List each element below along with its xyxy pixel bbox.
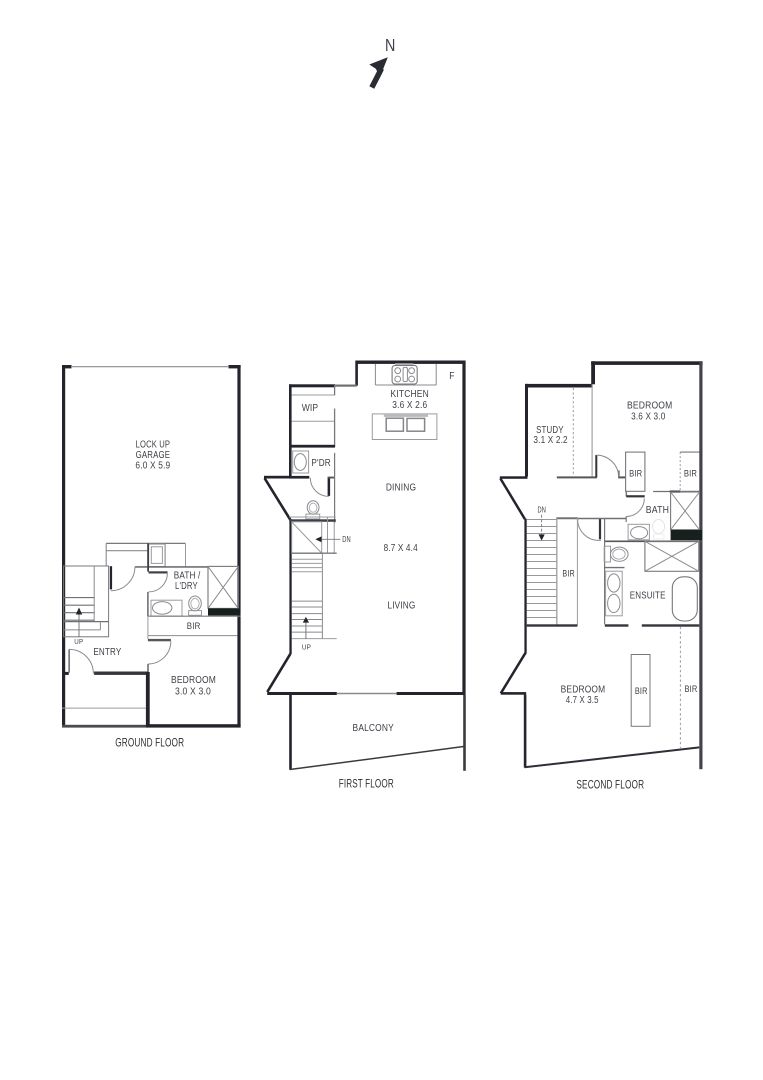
svg-text:BALCONY: BALCONY (353, 723, 394, 734)
svg-text:3.0 X 3.0: 3.0 X 3.0 (175, 686, 211, 697)
svg-text:BEDROOM: BEDROOM (171, 675, 216, 686)
svg-text:SECOND FLOOR: SECOND FLOOR (576, 778, 644, 792)
svg-text:GARAGE: GARAGE (136, 450, 171, 461)
svg-text:3.6 X 2.6: 3.6 X 2.6 (392, 400, 427, 411)
svg-text:BIR: BIR (562, 569, 574, 580)
svg-text:3.1 X 2.2: 3.1 X 2.2 (533, 435, 568, 446)
svg-text:LIVING: LIVING (387, 601, 415, 612)
svg-text:KITCHEN: KITCHEN (391, 389, 429, 400)
svg-text:DN: DN (538, 505, 547, 514)
svg-text:WIP: WIP (302, 403, 319, 414)
svg-text:FIRST FLOOR: FIRST FLOOR (339, 776, 394, 790)
svg-text:N: N (385, 35, 396, 55)
svg-text:4.7 X 3.5: 4.7 X 3.5 (566, 695, 599, 706)
svg-text:BIR: BIR (635, 686, 648, 697)
svg-text:BIR: BIR (187, 621, 201, 632)
svg-text:BIR: BIR (685, 684, 698, 695)
svg-text:8.7 X 4.4: 8.7 X 4.4 (384, 543, 418, 554)
svg-text:BEDROOM: BEDROOM (627, 401, 672, 412)
svg-text:ENSUITE: ENSUITE (630, 591, 666, 602)
svg-text:6.0 X 5.9: 6.0 X 5.9 (135, 460, 170, 471)
svg-text:L'DRY: L'DRY (175, 581, 198, 592)
svg-text:UP: UP (302, 642, 311, 651)
svg-text:BEDROOM: BEDROOM (561, 685, 606, 696)
svg-text:ENTRY: ENTRY (93, 647, 121, 658)
svg-text:DINING: DINING (386, 482, 416, 493)
svg-text:UP: UP (74, 637, 83, 646)
svg-text:BATH: BATH (646, 505, 669, 516)
svg-text:P'DR: P'DR (311, 458, 330, 469)
svg-text:GROUND FLOOR: GROUND FLOOR (115, 736, 184, 750)
svg-text:F: F (449, 370, 454, 382)
svg-text:BIR: BIR (629, 468, 642, 479)
svg-text:BIR: BIR (684, 468, 697, 479)
svg-text:DN: DN (342, 535, 351, 544)
svg-text:3.6 X 3.0: 3.6 X 3.0 (631, 412, 666, 423)
